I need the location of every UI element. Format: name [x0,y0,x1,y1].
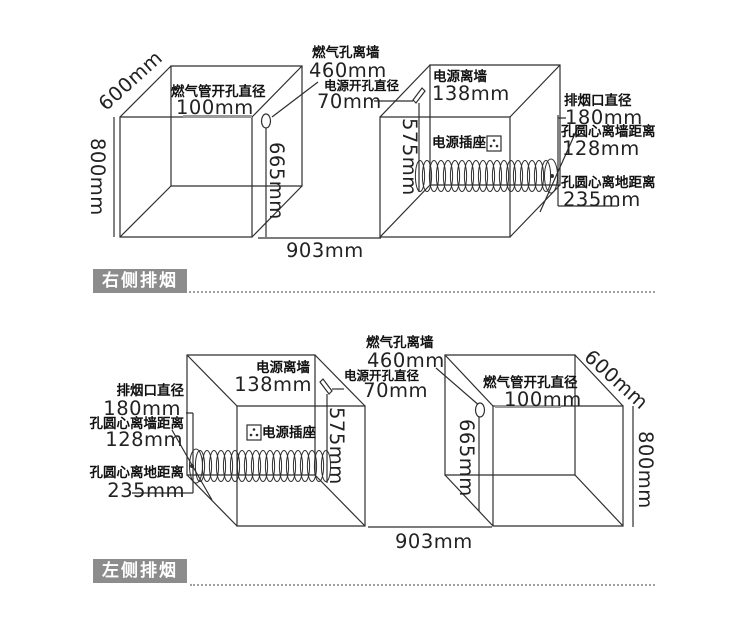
bottom-socket-label: 电源插座 [262,426,316,441]
top-width-dim-label: 903mm [286,242,364,259]
top-power-height-label: 575mm [398,118,420,194]
top-power-hole-icon [413,88,425,103]
bottom-width-dim-label: 903mm [395,533,473,550]
top-power-socket-icon [487,136,501,151]
top-gas-wall-leader-line [272,82,318,117]
bottom-dotted-divider [190,584,655,586]
top-dotted-divider [189,291,655,293]
top-power-wall-value: 138mm [432,85,510,102]
bottom-gas-wall-leader-line [436,368,481,407]
bottom-power-socket-icon [247,425,261,440]
bottom-flue-wall-value: 128mm [84,431,183,448]
bottom-gas-hole-height-label: 665mm [455,419,477,495]
bottom-flue-dia-value: 180mm [84,400,181,417]
top-gas-hole-icon [262,114,271,128]
top-gas-pipe-hole-value: 100mm [176,99,254,116]
bottom-gas-hole-icon [476,403,485,417]
top-exhaust-side-badge: 右侧排烟 [93,269,187,293]
top-corrugated-flue-pipe [415,159,557,193]
top-gas-hole-height-label: 665mm [265,142,287,218]
top-gas-hole-wall-value: 460mm [309,62,387,79]
bottom-flue-center-dot [190,464,194,468]
bottom-gas-hole-wall-value: 460mm [367,352,445,369]
top-power-hole-value: 70mm [317,93,382,110]
top-flue-floor-value: 235mm [563,191,641,208]
top-flue-center-dot [550,174,554,178]
bottom-flue-floor-value: 235mm [84,482,185,499]
bottom-corrugated-flue-pipe [190,449,331,483]
bottom-power-wall-value: 138mm [211,376,312,393]
bottom-power-height-label: 575mm [325,407,347,483]
bottom-power-hole-value: 70mm [328,382,428,399]
installation-diagram-page: 600mm 800mm 燃气管开孔直径 100mm 665mm 燃气孔离墙 46… [0,0,750,628]
bottom-gas-pipe-hole-value: 100mm [504,391,582,408]
top-flue-wall-value: 128mm [562,140,640,157]
bottom-exhaust-side-badge: 左侧排烟 [93,559,187,583]
top-height-dim-label: 800mm [86,138,108,214]
top-socket-label: 电源插座 [432,136,486,151]
bottom-height-dim-label: 800mm [634,431,656,507]
